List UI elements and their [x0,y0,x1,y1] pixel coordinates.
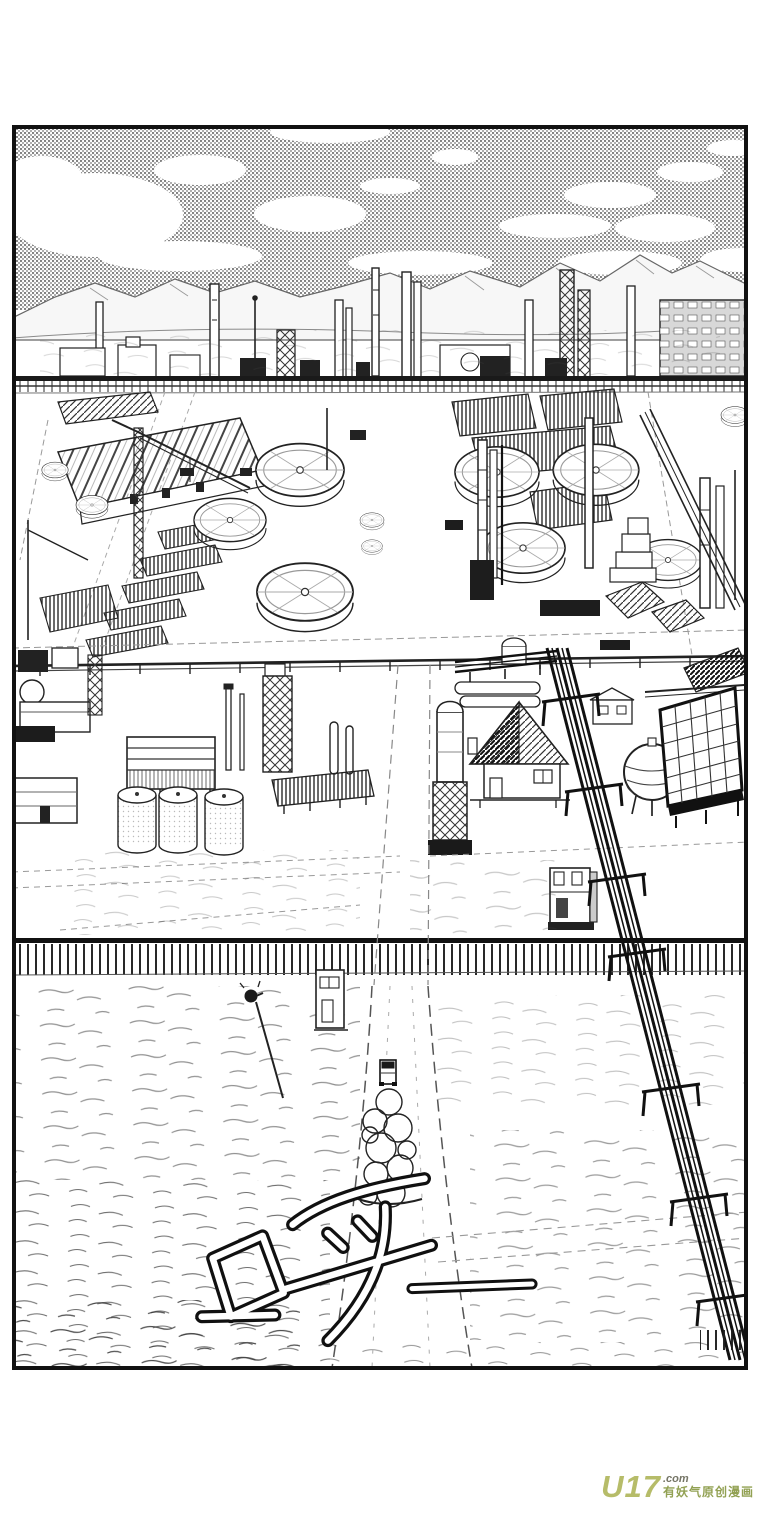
watermark-brand: U17 [601,1472,661,1502]
manga-panel-art [0,0,760,1515]
manga-page: 呼 —— U17 .com 有妖气原创漫画 [0,0,760,1515]
watermark-tagline: 有妖气原创漫画 [663,1485,754,1499]
watermark-text-column: .com 有妖气原创漫画 [663,1474,754,1499]
white-block-building [15,778,77,823]
perimeter-pipe-bridge [12,376,748,393]
truck [379,1060,397,1086]
lattice-tower [263,664,292,772]
watermark: U17 .com 有妖气原创漫画 [601,1472,754,1502]
guard-booth [314,970,348,1030]
cylinder-tanks [118,787,243,855]
watermark-suffix: .com [663,1474,754,1485]
corner-fence-stub [700,1330,748,1350]
